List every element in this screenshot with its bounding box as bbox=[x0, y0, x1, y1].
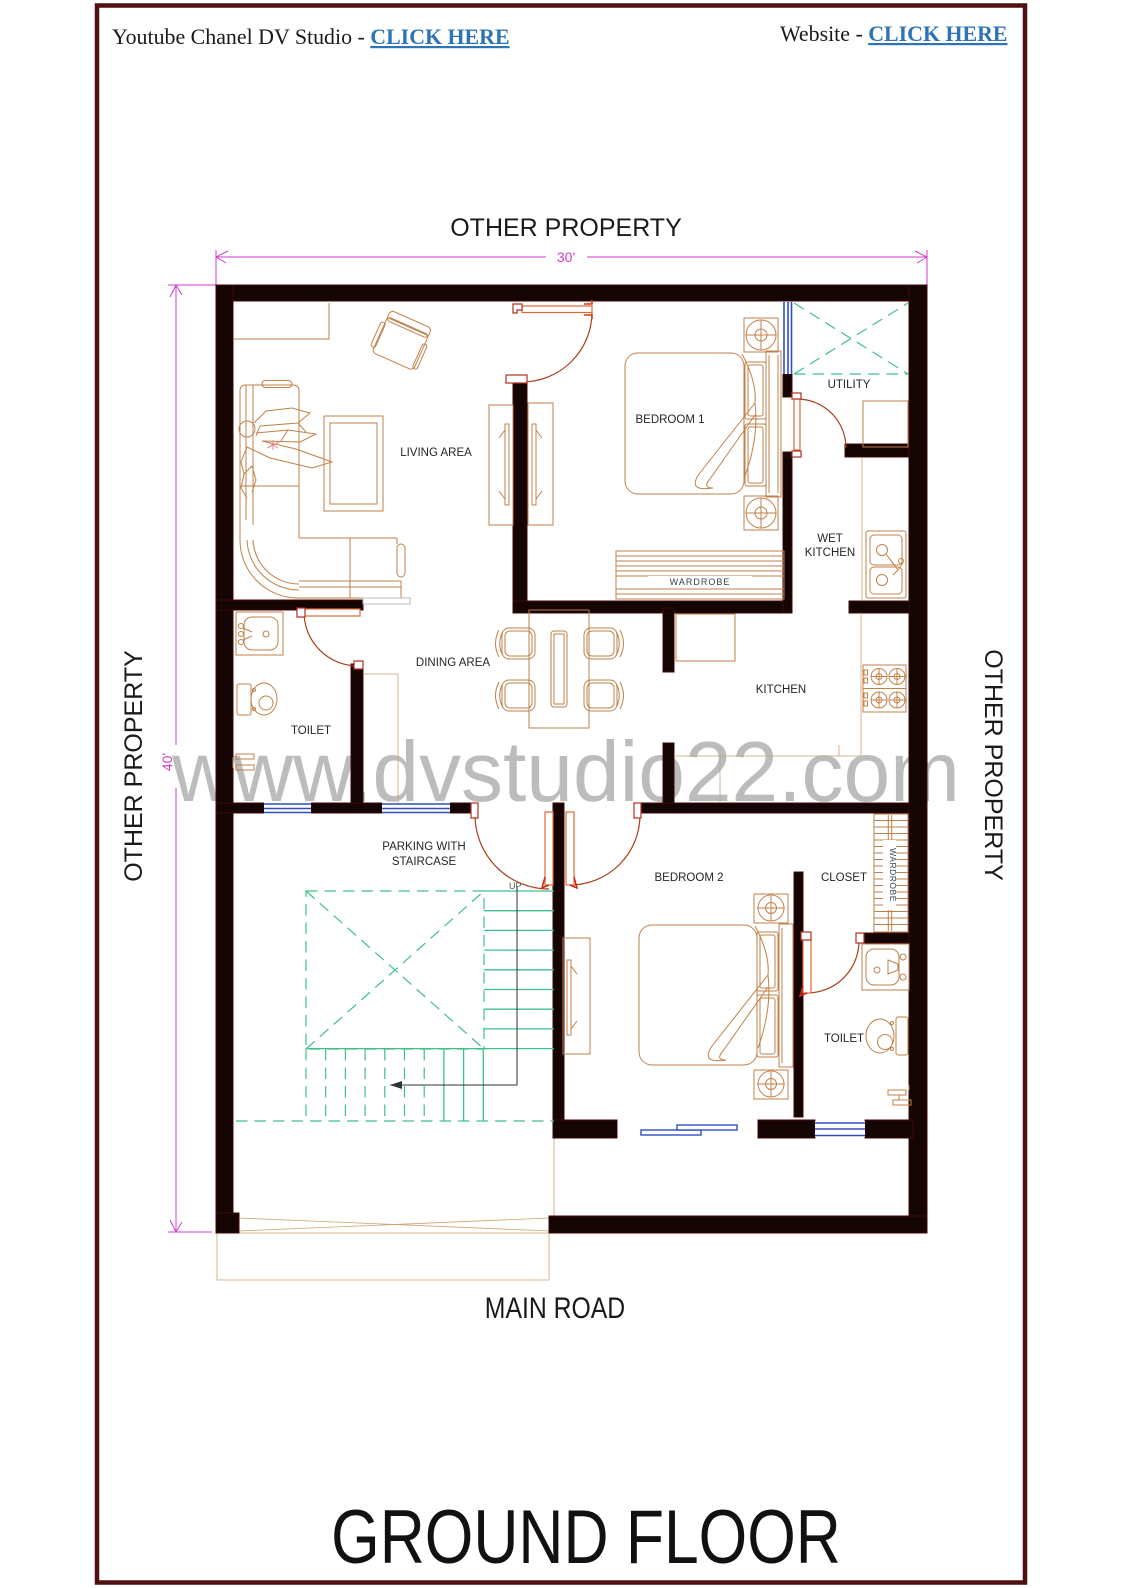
svg-text:Website - CLICK HERE: Website - CLICK HERE bbox=[780, 21, 1007, 46]
svg-text:PARKING WITH: PARKING WITH bbox=[382, 841, 465, 853]
svg-text:DINING AREA: DINING AREA bbox=[416, 657, 490, 669]
svg-text:UTILITY: UTILITY bbox=[828, 379, 871, 391]
svg-text:CLOSET: CLOSET bbox=[821, 872, 867, 884]
svg-text:WARDROBE: WARDROBE bbox=[670, 577, 731, 587]
svg-text:MAIN ROAD: MAIN ROAD bbox=[485, 1291, 625, 1325]
svg-text:UP: UP bbox=[509, 881, 522, 891]
svg-text:KITCHEN: KITCHEN bbox=[756, 684, 806, 696]
svg-text:LIVING AREA: LIVING AREA bbox=[400, 447, 472, 459]
svg-text:STAIRCASE: STAIRCASE bbox=[392, 856, 457, 868]
svg-text:Youtube Chanel DV Studio - CLI: Youtube Chanel DV Studio - CLICK HERE bbox=[112, 24, 510, 49]
svg-text:OTHER PROPERTY: OTHER PROPERTY bbox=[450, 214, 682, 242]
svg-text:KITCHEN: KITCHEN bbox=[805, 547, 855, 559]
svg-text:BEDROOM 1: BEDROOM 1 bbox=[635, 414, 704, 426]
svg-text:TOILET: TOILET bbox=[824, 1033, 864, 1045]
svg-text:WARDROBE: WARDROBE bbox=[888, 848, 898, 902]
svg-text:BEDROOM 2: BEDROOM 2 bbox=[654, 872, 723, 884]
svg-text:GROUND FLOOR: GROUND FLOOR bbox=[331, 1494, 841, 1579]
svg-text:40': 40' bbox=[159, 753, 175, 771]
svg-text:30': 30' bbox=[557, 249, 575, 265]
svg-text:OTHER PROPERTY: OTHER PROPERTY bbox=[120, 650, 148, 882]
svg-text:OTHER PROPERTY: OTHER PROPERTY bbox=[979, 649, 1007, 881]
svg-text:WET: WET bbox=[817, 533, 843, 545]
svg-text:TOILET: TOILET bbox=[291, 725, 331, 737]
